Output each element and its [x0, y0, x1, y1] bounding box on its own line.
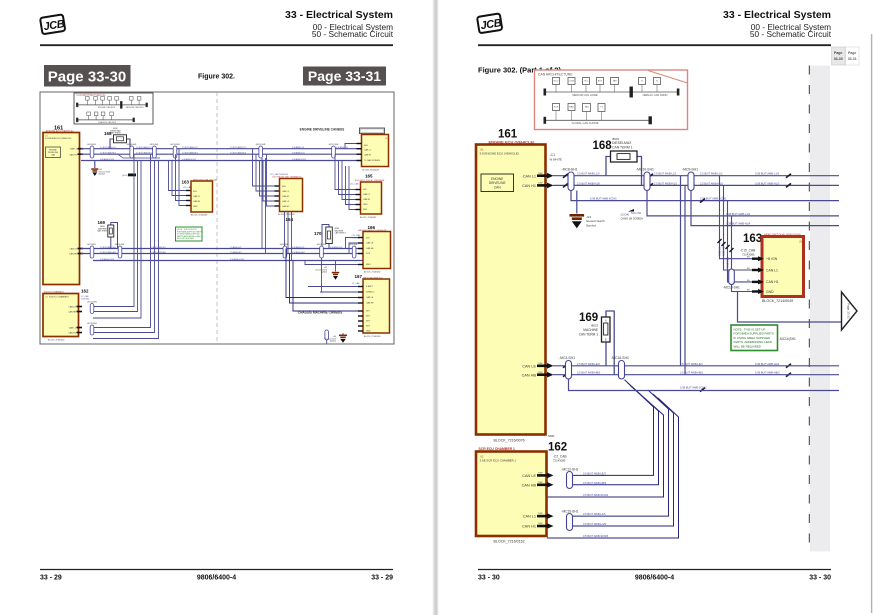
- svg-text:-MC3-SH1: -MC3-SH1: [559, 356, 575, 360]
- svg-text:-MC16-SH1: -MC16-SH1: [611, 356, 629, 360]
- svg-text:-MC6-SH1: -MC6-SH1: [349, 244, 358, 246]
- svg-text:-MC10-SH1: -MC10-SH1: [127, 144, 137, 146]
- svg-text:CAN L1: CAN L1: [523, 515, 536, 519]
- svg-text:BLOCK_7214/0052: BLOCK_7214/0052: [364, 272, 380, 274]
- svg-text:0.38 BU/T AWB-SCN/0: 0.38 BU/T AWB-SCN/0: [590, 197, 617, 201]
- svg-text:CAN TERM 1: CAN TERM 1: [97, 230, 108, 233]
- svg-text:Symbol: Symbol: [586, 223, 596, 227]
- svg-text:0.38 AWB-SCN/2: 0.38 AWB-SCN/2: [292, 158, 306, 161]
- svg-text:9806/6400-4: 9806/6400-4: [635, 575, 674, 582]
- svg-text:Figure 302.: Figure 302.: [198, 74, 235, 81]
- svg-text:0.38 BU/T AWB-L1/3: 0.38 BU/T AWB-L1/3: [755, 172, 779, 176]
- svg-text:ENGINE CAN BUS: ENGINE CAN BUS: [98, 106, 116, 109]
- svg-text:MEDIUM CAN HOME: MEDIUM CAN HOME: [572, 93, 597, 97]
- svg-text:169: 169: [579, 312, 598, 324]
- svg-text:-MC18-SH1: -MC18-SH1: [317, 244, 327, 246]
- svg-text:SCN 1W: SCN 1W: [631, 211, 642, 215]
- svg-text:2.5 BU/T AWB-HB/0: 2.5 BU/T AWB-HB/0: [577, 371, 601, 375]
- svg-text:BLOCK_7216/0162: BLOCK_7216/0162: [494, 540, 525, 544]
- svg-text:BLOCK_7214/0049: BLOCK_7214/0049: [762, 299, 793, 303]
- svg-text:2.5 BU/T AWB-H1/1: 2.5 BU/T AWB-H1/1: [654, 181, 677, 185]
- svg-text:IGN: IGN: [282, 186, 286, 188]
- svg-text:(S.D4): (S.D4): [621, 213, 630, 217]
- svg-text:GLOBAL CAN CHOME: GLOBAL CAN CHOME: [572, 121, 599, 125]
- svg-text:CAN L1: CAN L1: [523, 174, 536, 178]
- svg-text:71 CAB SCREEN: 71 CAB SCREEN: [364, 159, 380, 162]
- svg-text:AWB-L1: AWB-L1: [719, 247, 722, 256]
- svg-text:2.5 BU/T AWB-L1/2: 2.5 BU/T AWB-L1/2: [182, 146, 198, 149]
- svg-text:-MC12-SH1: -MC12-SH1: [562, 467, 579, 471]
- svg-text:GND: GND: [366, 264, 371, 266]
- svg-text:MEDIUM CAN BUS: MEDIUM CAN BUS: [126, 106, 144, 109]
- svg-text:CAN HB: CAN HB: [522, 373, 537, 377]
- svg-text:50 - Schematic Circuit: 50 - Schematic Circuit: [312, 29, 394, 39]
- svg-text:CAN L1: CAN L1: [69, 326, 77, 329]
- svg-text:33 - Electrical System: 33 - Electrical System: [285, 9, 393, 21]
- svg-text:CAN H1: CAN H1: [68, 331, 76, 334]
- svg-text:Page 33-30: Page 33-30: [48, 69, 126, 86]
- svg-text:CAN L1: CAN L1: [70, 148, 78, 151]
- svg-text:0.38 BU/T AWB-L1/4: 0.38 BU/T AWB-L1/4: [726, 212, 750, 216]
- svg-text:9806/6400-4: 9806/6400-4: [197, 575, 236, 582]
- svg-text:-MC3-SH1: -MC3-SH1: [87, 244, 96, 246]
- svg-text:BLOCK_7214/0049: BLOCK_7214/0049: [363, 169, 379, 171]
- svg-text:168: 168: [593, 140, 613, 152]
- svg-text:C15_CAB: C15_CAB: [350, 183, 359, 186]
- svg-text:W WHITE: W WHITE: [550, 158, 563, 162]
- svg-text:SCR: SCR: [366, 253, 371, 255]
- svg-text:2.5 BU/T AWB-L1/0: 2.5 BU/T AWB-L1/0: [577, 172, 600, 176]
- svg-text:0.38 AWB-SCN/3: 0.38 AWB-SCN/3: [100, 258, 114, 261]
- svg-text:0.38 AWB-LE/3: 0.38 AWB-LE/3: [292, 246, 304, 249]
- svg-text:0.5 BU/T AWB-LE/3: 0.5 BU/T AWB-LE/3: [583, 471, 606, 475]
- svg-text:0.5 BU/T AWB-SCN/5: 0.5 BU/T AWB-SCN/5: [583, 534, 609, 538]
- svg-text:165: 165: [365, 173, 373, 178]
- svg-text:IGN: IGN: [363, 189, 367, 191]
- svg-text:.02: .02: [45, 297, 48, 299]
- svg-text:170: 170: [314, 231, 322, 236]
- svg-text:0.38 AWB-HE/4: 0.38 AWB-HE/4: [292, 251, 305, 254]
- svg-text:SCR: SCR: [554, 107, 559, 109]
- svg-text:2.5 BU/T AWB-HE/0: 2.5 BU/T AWB-HE/0: [100, 251, 116, 254]
- svg-text:(S.D4): (S.D4): [122, 175, 128, 177]
- svg-text:33-30: 33-30: [834, 57, 843, 61]
- svg-text:164: 164: [286, 217, 294, 222]
- svg-text:CAN LE: CAN LE: [522, 364, 536, 368]
- svg-text:TAB: TAB: [584, 106, 589, 109]
- svg-text:3.8 ENGINE ECU (VEHICLE): 3.8 ENGINE ECU (VEHICLE): [480, 152, 519, 156]
- svg-text:SCR ECU CHAMBER 1: SCR ECU CHAMBER 1: [479, 447, 515, 451]
- svg-text:B BATT: B BATT: [366, 285, 374, 288]
- svg-text:33 - 29: 33 - 29: [40, 575, 62, 582]
- svg-text:IGN: IGN: [193, 191, 197, 193]
- svg-text:-MC14(SH1: -MC14(SH1: [779, 337, 796, 341]
- svg-text:-MC11-SH1: -MC11-SH1: [170, 144, 180, 146]
- svg-text:NEBLAU CAN NNNN: NEBLAU CAN NNNN: [643, 93, 668, 97]
- svg-text:BLOCK_7214/0053: BLOCK_7214/0053: [364, 336, 380, 338]
- svg-text:-MC9-SH1: -MC9-SH1: [150, 144, 159, 146]
- svg-text:ENGINE DRIVELINE CANBUS: ENGINE DRIVELINE CANBUS: [300, 128, 345, 132]
- svg-text:2.5 BU/T AWB-L1/2: 2.5 BU/T AWB-L1/2: [700, 172, 723, 176]
- svg-text:TAB: TAB: [612, 80, 617, 83]
- svg-text:0.5 BU/T AWB-SCN/3: 0.5 BU/T AWB-SCN/3: [583, 493, 609, 497]
- svg-text:0.38 AWB-LE/4: 0.38 AWB-LE/4: [330, 246, 342, 249]
- svg-text:IGN: IGN: [366, 238, 370, 240]
- svg-text:-MC9-SH1: -MC9-SH1: [682, 168, 698, 172]
- svg-text:50 - Schematic Circuit: 50 - Schematic Circuit: [750, 29, 832, 39]
- svg-text:2.5 BU/T AWB-L1/3: 2.5 BU/T AWB-L1/3: [230, 146, 246, 149]
- svg-text:163: 163: [743, 233, 762, 245]
- svg-text:CAN H1: CAN H1: [766, 280, 779, 284]
- svg-text:2.5 BU/T AWB-HE/1: 2.5 BU/T AWB-HE/1: [150, 251, 166, 254]
- svg-text:WILL BE REQUIRED: WILL BE REQUIRED: [734, 344, 761, 348]
- svg-text:CAN LE: CAN LE: [522, 474, 536, 478]
- svg-text:C1_CAB: C1_CAB: [352, 282, 360, 285]
- svg-text:33 - 30: 33 - 30: [809, 575, 831, 582]
- svg-text:CAN HB: CAN HB: [522, 483, 537, 487]
- svg-text:0.38 AWB-SCN/1: 0.38 AWB-SCN/1: [182, 158, 196, 161]
- svg-text:CAN: CAN: [494, 185, 501, 189]
- svg-text:CAN H1: CAN H1: [363, 198, 371, 201]
- svg-text:MACHINE: MACHINE: [583, 328, 598, 332]
- svg-text:CAN L1: CAN L1: [193, 195, 201, 198]
- svg-text:AWB-H1: AWB-H1: [723, 246, 726, 256]
- svg-text:33-31: 33-31: [848, 57, 857, 61]
- svg-text:CAN L1: CAN L1: [282, 190, 290, 193]
- svg-text:CAN LE: CAN LE: [366, 296, 374, 299]
- svg-text:AWB-SCN: AWB-SCN: [727, 257, 730, 268]
- svg-text:163: 163: [182, 180, 190, 185]
- svg-text:72143085: 72143085: [553, 459, 566, 463]
- svg-text:0.38 AWB-H1/4: 0.38 AWB-H1/4: [292, 152, 304, 155]
- svg-text:SCR ECU CHAMBER 1: SCR ECU CHAMBER 1: [49, 296, 69, 299]
- svg-text:0.38 BU/T AWB-H1/3: 0.38 BU/T AWB-H1/3: [755, 181, 780, 185]
- svg-text:2.5 BU/T AWB-LE/1: 2.5 BU/T AWB-LE/1: [680, 362, 703, 366]
- svg-text:CAN L1: CAN L1: [363, 193, 371, 196]
- svg-text:-MC4-SH1: -MC4-SH1: [280, 244, 289, 246]
- svg-text:Page 33-31: Page 33-31: [308, 68, 381, 84]
- svg-text:167: 167: [355, 274, 363, 279]
- svg-text:+B IGN: +B IGN: [766, 257, 778, 261]
- svg-text:0.38 AWB-SCN/4: 0.38 AWB-SCN/4: [230, 258, 244, 261]
- svg-text:-MC13-SH1: -MC13-SH1: [723, 286, 740, 290]
- svg-text:162: 162: [81, 289, 89, 294]
- svg-text:CAN H1: CAN H1: [69, 153, 77, 156]
- svg-text:162: 162: [548, 442, 567, 454]
- svg-text:CAN LE: CAN LE: [69, 248, 77, 251]
- svg-text:CHASSIS CAN BUS: CHASSIS CAN BUS: [98, 121, 117, 124]
- svg-text:2.5 BU/T AWB-H1/0: 2.5 BU/T AWB-H1/0: [577, 181, 600, 185]
- svg-text:169: 169: [98, 220, 106, 225]
- svg-text:2.5 BU/T AWB-LE/1: 2.5 BU/T AWB-LE/1: [150, 246, 166, 249]
- svg-text:-MC15-SH1: -MC15-SH1: [87, 323, 97, 325]
- svg-text:0.38 AWB-SCN/0: 0.38 AWB-SCN/0: [100, 158, 114, 161]
- svg-text:CAN LE: CAN LE: [366, 242, 374, 245]
- svg-text:Symbol: Symbol: [99, 174, 106, 176]
- svg-text:2.5 BU/T AWB-H1/2: 2.5 BU/T AWB-H1/2: [182, 152, 198, 155]
- svg-text:AUX: AUX: [598, 80, 603, 83]
- svg-text:3.8 ENGINE ECU (VEHICLE): 3.8 ENGINE ECU (VEHICLE): [45, 138, 72, 140]
- svg-text:IGN: IGN: [364, 145, 368, 147]
- svg-text:-MC10-SH1: -MC10-SH1: [636, 168, 654, 172]
- svg-text:/8033: /8033: [591, 324, 598, 328]
- svg-text:0.5 BU/T AWB-H1/5: 0.5 BU/T AWB-H1/5: [583, 522, 606, 526]
- svg-text:2.5 BU/T AWB-L1/1: 2.5 BU/T AWB-L1/1: [136, 146, 152, 149]
- svg-text:CAN TERM 1: CAN TERM 1: [612, 145, 633, 149]
- svg-text:2.5 AWB-LE/2: 2.5 AWB-LE/2: [230, 246, 241, 249]
- svg-text:2.5 BU/T AWB-H1/1: 2.5 BU/T AWB-H1/1: [136, 152, 152, 155]
- svg-text:CAN H1: CAN H1: [282, 195, 290, 198]
- svg-text:72143085: 72143085: [81, 298, 89, 300]
- svg-text:-MC16-SH1: -MC16-SH1: [115, 244, 125, 246]
- svg-text:33 - Electrical System: 33 - Electrical System: [723, 9, 831, 21]
- svg-text:-MC8-SH1: -MC8-SH1: [562, 168, 578, 172]
- svg-text:CAN H1: CAN H1: [193, 200, 201, 203]
- svg-text:CAN H1: CAN H1: [364, 154, 372, 157]
- svg-text:33 - 30: 33 - 30: [478, 575, 500, 582]
- svg-text:ECU: ECU: [554, 81, 559, 83]
- svg-text:IGN/ACC: IGN/ACC: [366, 291, 375, 294]
- svg-text:CAN L1: CAN L1: [364, 149, 372, 152]
- svg-text:GND: GND: [363, 204, 368, 206]
- svg-text:CAN HE: CAN HE: [68, 310, 76, 313]
- svg-text:0.5 BU/T AWB-L1/5: 0.5 BU/T AWB-L1/5: [583, 512, 606, 516]
- svg-text:0.38 AWB-L1/5: 0.38 AWB-L1/5: [336, 146, 348, 149]
- svg-text:CAN: CAN: [51, 153, 56, 156]
- svg-text:CAN H1: CAN H1: [522, 525, 536, 529]
- svg-text:-MC13-SH1: -MC13-SH1: [256, 144, 266, 146]
- svg-text:C15_CAB 7214/0050: C15_CAB 7214/0050: [270, 173, 288, 176]
- svg-text:0.38 BU/T AWB-LE/2: 0.38 BU/T AWB-LE/2: [755, 362, 780, 366]
- svg-text:0.38 BU/T AWB-H1/4: 0.38 BU/T AWB-H1/4: [726, 222, 751, 226]
- svg-text:NRM: NRM: [548, 434, 555, 438]
- svg-text:CAN H1: CAN H1: [522, 184, 536, 188]
- svg-text:Page: Page: [848, 51, 856, 55]
- svg-text:33 - 29: 33 - 29: [371, 575, 393, 582]
- svg-text:2.5 BU/T AWB-H1/0: 2.5 BU/T AWB-H1/0: [100, 152, 116, 155]
- svg-text:JS19: JS19: [799, 240, 805, 244]
- svg-text:WILL BE REQUIRED: WILL BE REQUIRED: [177, 238, 195, 240]
- svg-text:CAN L1: CAN L1: [766, 268, 778, 272]
- svg-text:0.38 AWB-L1/4: 0.38 AWB-L1/4: [292, 146, 304, 149]
- svg-text:2.5 BU/T AWB-H1/3: 2.5 BU/T AWB-H1/3: [230, 152, 246, 155]
- svg-text:HU: HU: [584, 81, 588, 83]
- svg-text:DIESELMAX: DIESELMAX: [612, 141, 632, 145]
- svg-text:Symbol: Symbol: [330, 341, 337, 343]
- svg-text:CAN L2: CAN L2: [282, 200, 290, 203]
- svg-text:-MC12-SH1: -MC12-SH1: [87, 302, 97, 304]
- svg-text:BLOCK_7216/0076: BLOCK_7216/0076: [494, 439, 525, 443]
- svg-text:-MC15-SH1: -MC15-SH1: [562, 509, 579, 513]
- svg-text:0.5 BU/T AWB-HB/3: 0.5 BU/T AWB-HB/3: [583, 481, 607, 485]
- svg-text:LLNK: LLNK: [569, 81, 575, 83]
- svg-text:-C1: -C1: [550, 153, 556, 157]
- svg-text:CAN ARCHITECTURE FIG: CAN ARCHITECTURE FIG: [77, 94, 106, 97]
- svg-text:GND: GND: [766, 290, 774, 294]
- svg-text:CAN LE: CAN LE: [68, 305, 76, 308]
- svg-text:CAN HE: CAN HE: [69, 253, 77, 256]
- svg-text:SHD: SHD: [363, 209, 368, 211]
- svg-text:2.5 BU/T AWB-L1/0: 2.5 BU/T AWB-L1/0: [100, 146, 116, 149]
- svg-text:-MC17-SH1: -MC17-SH1: [329, 144, 339, 146]
- svg-text:GND: GND: [193, 206, 198, 208]
- svg-text:BLOCK_7214/0051: BLOCK_7214/0051: [360, 217, 376, 219]
- svg-text:GND: GND: [366, 331, 371, 333]
- svg-text:CAN TERM 2: CAN TERM 2: [335, 232, 346, 235]
- svg-text:RAD: RAD: [569, 106, 574, 109]
- svg-text:BLOCK_7216/0162: BLOCK_7216/0162: [48, 339, 64, 341]
- svg-text:CAN H2: CAN H2: [282, 205, 290, 208]
- svg-text:0.38 BU/T AWB-SCN/2: 0.38 BU/T AWB-SCN/2: [680, 386, 707, 390]
- svg-text:2.5 BU/T AWB-LE/0: 2.5 BU/T AWB-LE/0: [577, 362, 600, 366]
- svg-text:CAN HE: CAN HE: [366, 247, 374, 250]
- svg-text:2.5 BU/T AWB-L1/1: 2.5 BU/T AWB-L1/1: [654, 172, 677, 176]
- svg-text:3.AE SCR ECU CHAMBER 1: 3.AE SCR ECU CHAMBER 1: [480, 459, 517, 463]
- svg-text:-MC8-SH1: -MC8-SH1: [87, 144, 96, 146]
- svg-text:2.5 BU/T AWB-LE/0: 2.5 BU/T AWB-LE/0: [100, 246, 116, 249]
- svg-text:BLOCK_7214/0049: BLOCK_7214/0049: [191, 215, 207, 217]
- svg-text:Page: Page: [834, 51, 842, 55]
- svg-text:CAN ARCHITECTURE: CAN ARCHITECTURE: [538, 73, 573, 77]
- svg-text:Page 33-31: Page 33-31: [847, 303, 851, 319]
- svg-text:2.5 BU/T AWB-HB/1: 2.5 BU/T AWB-HB/1: [680, 371, 704, 375]
- svg-text:CAN TERM 1: CAN TERM 1: [110, 132, 121, 135]
- svg-text:2.5 AWB-HE/2: 2.5 AWB-HE/2: [230, 251, 242, 254]
- svg-text:CAN TERM 1: CAN TERM 1: [579, 333, 598, 337]
- svg-text:0.38 BU/T AWB-HB/2: 0.38 BU/T AWB-HB/2: [755, 371, 780, 375]
- svg-text:C15_CAB: C15_CAB: [183, 186, 192, 189]
- svg-text:CHAIN 1W SCREEN: CHAIN 1W SCREEN: [621, 218, 644, 221]
- svg-text:CAN HE: CAN HE: [366, 302, 374, 305]
